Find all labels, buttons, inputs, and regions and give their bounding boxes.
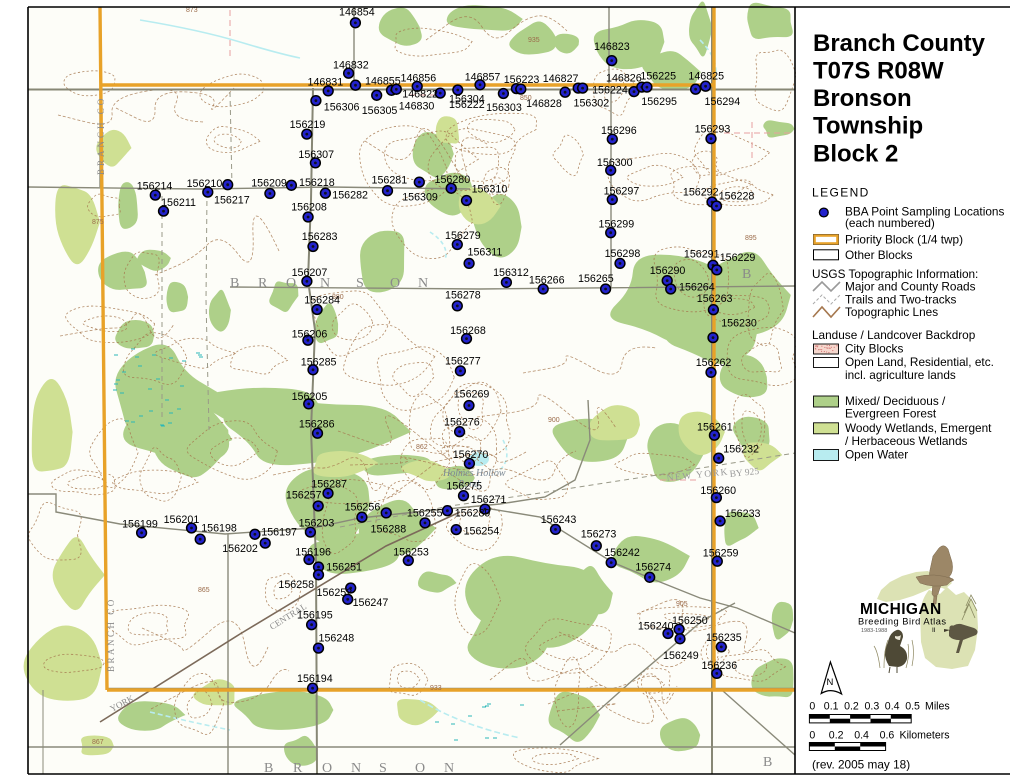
svg-text:156197: 156197 [261,527,297,539]
svg-text:/ Herbaceous Wetlands: / Herbaceous Wetlands [845,434,968,448]
svg-text:156233: 156233 [725,508,761,520]
svg-text:146825: 146825 [688,71,724,83]
svg-text:156311: 156311 [468,247,503,259]
svg-text:156268: 156268 [450,325,486,337]
svg-text:156300: 156300 [597,157,633,169]
svg-text:156262: 156262 [696,357,732,369]
svg-text:156261: 156261 [697,422,733,434]
svg-text:156207: 156207 [292,267,328,279]
svg-text:146828: 146828 [526,98,562,110]
svg-text:156266: 156266 [529,275,565,287]
svg-text:156208: 156208 [291,202,327,214]
svg-text:Breeding Bird Atlas: Breeding Bird Atlas [858,617,947,627]
svg-text:156284: 156284 [304,295,340,307]
svg-text:156263: 156263 [697,293,733,305]
svg-text:156214: 156214 [137,181,173,193]
svg-text:(rev. 2005 may 18): (rev. 2005 may 18) [812,758,910,772]
svg-text:Branch County: Branch County [813,30,986,57]
svg-text:Evergreen Forest: Evergreen Forest [845,407,937,421]
svg-text:156225: 156225 [640,71,676,83]
svg-text:156274: 156274 [635,562,671,574]
svg-text:156257: 156257 [286,490,322,502]
svg-text:0.3: 0.3 [865,701,880,713]
svg-text:156211: 156211 [161,197,196,209]
svg-text:146832: 146832 [333,60,369,72]
svg-text:156254: 156254 [464,526,500,538]
svg-text:156222: 156222 [449,99,485,111]
svg-text:B: B [763,755,772,770]
svg-text:Woody Wetlands, Emergent: Woody Wetlands, Emergent [845,421,992,435]
svg-text:156302: 156302 [574,98,610,110]
svg-text:156309: 156309 [402,192,438,204]
svg-text:Kilometers: Kilometers [900,730,950,742]
svg-text:156199: 156199 [122,519,158,531]
svg-text:156206: 156206 [292,329,328,341]
svg-text:S: S [356,276,364,291]
svg-text:B: B [230,276,239,291]
svg-text:146831: 146831 [308,77,344,89]
svg-text:BRANCH CO: BRANCH CO [106,597,116,672]
svg-text:156210: 156210 [187,178,223,190]
svg-text:156283: 156283 [302,231,338,243]
svg-text:156209: 156209 [251,178,287,190]
svg-text:156299: 156299 [599,219,635,231]
svg-text:156243: 156243 [541,514,577,526]
svg-text:Holmes Hollow: Holmes Hollow [442,468,506,479]
svg-text:156218: 156218 [299,177,335,189]
svg-text:156198: 156198 [201,523,237,535]
svg-text:156260: 156260 [700,485,736,497]
svg-text:156248: 156248 [319,633,355,645]
svg-text:O: O [390,276,400,291]
svg-text:N: N [827,677,834,688]
svg-text:156230: 156230 [721,318,757,330]
svg-text:156269: 156269 [454,389,490,401]
svg-text:156282: 156282 [332,190,368,202]
svg-text:156253: 156253 [393,547,429,559]
svg-text:156270: 156270 [453,449,489,461]
svg-text:Topographic Lnes: Topographic Lnes [845,305,938,319]
svg-text:156250: 156250 [672,615,708,627]
svg-text:156229: 156229 [720,252,756,264]
svg-text:862: 862 [416,444,428,451]
svg-text:156273: 156273 [581,529,617,541]
svg-text:156251: 156251 [326,562,362,574]
svg-text:156298: 156298 [605,248,641,260]
svg-text:156303: 156303 [486,102,522,114]
svg-text:156264: 156264 [679,282,715,294]
svg-text:156236: 156236 [702,660,738,672]
svg-text:incl. agriculture lands: incl. agriculture lands [845,368,956,382]
svg-text:875: 875 [92,219,104,226]
svg-text:Township: Township [813,113,923,140]
svg-text:Major and County Roads: Major and County Roads [845,280,976,294]
svg-text:156219: 156219 [290,119,326,131]
svg-text:0.1: 0.1 [824,701,839,713]
svg-text:156255: 156255 [407,508,443,520]
svg-text:LEGEND: LEGEND [812,186,870,200]
svg-text:146823: 146823 [594,41,630,53]
svg-text:Other Blocks: Other Blocks [845,248,913,262]
svg-text:156310: 156310 [472,184,508,196]
svg-text:156305: 156305 [362,105,398,117]
svg-text:156286: 156286 [299,419,335,431]
svg-text:156295: 156295 [641,96,677,108]
svg-text:933: 933 [430,685,442,692]
svg-text:Landuse / Landcover Backdrop: Landuse / Landcover Backdrop [812,328,976,342]
svg-text:156217: 156217 [214,195,250,207]
svg-text:BRANCH CO: BRANCH CO [96,96,106,175]
svg-text:146830: 146830 [399,101,435,113]
svg-text:156203: 156203 [299,518,335,530]
svg-text:905: 905 [676,601,688,608]
svg-text:0.2: 0.2 [829,730,844,742]
svg-text:900: 900 [548,417,560,424]
svg-text:156290: 156290 [650,265,686,277]
svg-text:156224: 156224 [592,85,628,97]
svg-text:935: 935 [528,37,540,44]
svg-text:(each numbered): (each numbered) [845,216,935,230]
svg-text:146827: 146827 [543,73,579,85]
svg-text:156312: 156312 [493,267,529,279]
svg-text:156278: 156278 [445,290,481,302]
svg-text:867: 867 [92,739,104,746]
svg-text:Priority Block (1/4 twp): Priority Block (1/4 twp) [845,233,963,247]
svg-text:156194: 156194 [297,673,333,685]
svg-text:156256: 156256 [345,502,381,514]
svg-text:0.5: 0.5 [905,701,920,713]
svg-text:146826: 146826 [606,73,642,85]
svg-text:146854: 146854 [339,7,375,19]
svg-text:N: N [418,276,428,291]
svg-text:156195: 156195 [297,610,333,622]
svg-text:156293: 156293 [695,124,731,136]
svg-text:156232: 156232 [723,444,759,456]
svg-text:Miles: Miles [925,701,950,713]
svg-text:895: 895 [745,235,757,242]
svg-text:0.4: 0.4 [854,730,869,742]
svg-text:156265: 156265 [578,273,614,285]
svg-text:0: 0 [809,730,815,742]
svg-text:0.2: 0.2 [844,701,859,713]
svg-text:156294: 156294 [705,96,741,108]
svg-text:156292: 156292 [683,187,719,199]
svg-text:156279: 156279 [445,230,481,242]
svg-text:156288: 156288 [371,524,407,536]
svg-text:156307: 156307 [298,149,334,161]
svg-text:156291: 156291 [684,249,720,261]
svg-text:156281: 156281 [372,175,408,187]
svg-text:0.4: 0.4 [885,701,900,713]
svg-text:156275: 156275 [446,481,482,493]
svg-text:156249: 156249 [663,650,699,662]
svg-text:146857: 146857 [465,72,501,84]
svg-text:156242: 156242 [604,547,640,559]
svg-text:II: II [932,627,936,634]
svg-text:Open Land, Residential, etc.: Open Land, Residential, etc. [845,355,994,369]
svg-text:156277: 156277 [445,356,481,368]
svg-text:146822: 146822 [402,89,438,101]
svg-text:156306: 156306 [324,102,360,114]
svg-text:146856: 146856 [401,73,437,85]
svg-text:156205: 156205 [292,391,328,403]
svg-text:873: 873 [186,7,198,14]
svg-text:R: R [258,276,268,291]
svg-text:156276: 156276 [444,417,480,429]
svg-text:156196: 156196 [295,547,331,559]
svg-text:1983-1988: 1983-1988 [861,628,887,634]
svg-text:156258: 156258 [278,579,314,591]
svg-text:156240: 156240 [638,621,674,633]
svg-text:156297: 156297 [604,186,640,198]
svg-text:Open Water: Open Water [845,448,908,462]
svg-text:B: B [742,267,751,282]
svg-text:T07S R08W: T07S R08W [813,58,944,85]
svg-text:156289: 156289 [455,508,491,520]
svg-text:Block 2: Block 2 [813,141,898,168]
svg-text:865: 865 [198,587,210,594]
svg-text:0: 0 [809,701,815,713]
svg-text:156296: 156296 [601,125,637,137]
svg-text:City Blocks: City Blocks [845,342,903,356]
svg-text:156228: 156228 [719,191,755,203]
svg-text:Bronson: Bronson [813,85,912,112]
svg-text:156202: 156202 [222,543,258,555]
svg-text:156285: 156285 [301,357,337,369]
svg-text:0.6: 0.6 [880,730,895,742]
svg-text:156201: 156201 [164,514,200,526]
svg-text:156259: 156259 [703,548,739,560]
svg-text:156247: 156247 [353,597,389,609]
svg-text:156235: 156235 [706,632,742,644]
svg-text:MICHIGAN: MICHIGAN [860,601,942,618]
svg-text:156271: 156271 [471,494,507,506]
